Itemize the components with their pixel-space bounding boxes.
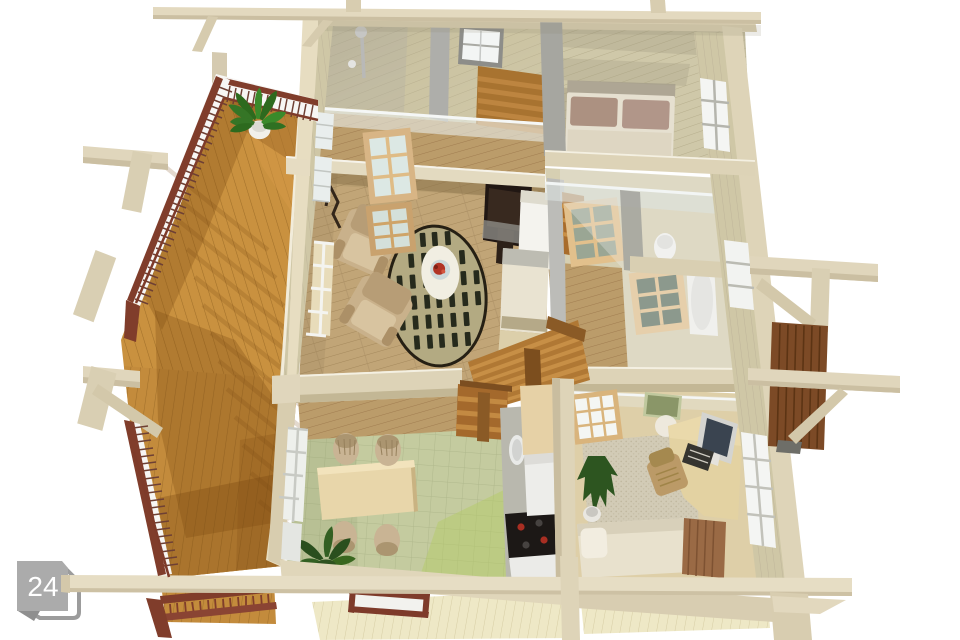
svg-text:24: 24	[27, 571, 58, 602]
